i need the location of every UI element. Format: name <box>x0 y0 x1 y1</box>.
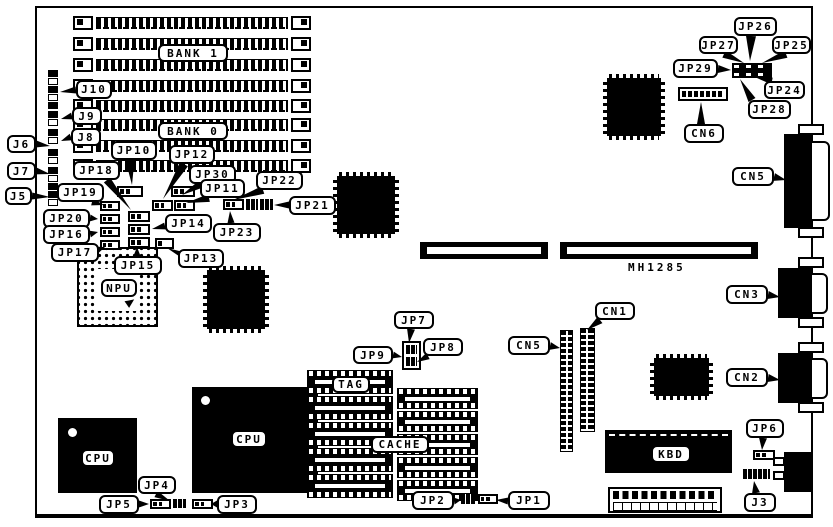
leader-line <box>89 231 98 238</box>
leader-line <box>90 215 98 222</box>
leader-line <box>126 160 135 185</box>
callout-text: JP11 <box>205 182 240 195</box>
callout-text: TAG <box>338 378 364 391</box>
leader-line <box>496 498 508 505</box>
callout-text: KBD <box>658 448 684 461</box>
callout-text: CN6 <box>691 127 717 140</box>
label-jp5: JP5 <box>99 495 139 514</box>
leader-line <box>767 291 780 299</box>
callout-text: JP19 <box>63 186 98 199</box>
callout-text: JP25 <box>774 39 809 52</box>
callout-text: JP10 <box>117 144 152 157</box>
callout-text: J8 <box>77 131 94 144</box>
label-jp4: JP4 <box>138 476 176 494</box>
label-jp22: JP22 <box>256 171 303 190</box>
leader-line <box>407 328 415 343</box>
callout-text: J3 <box>751 496 768 509</box>
label-j10: J10 <box>76 80 112 99</box>
label-jp25: JP25 <box>772 36 811 54</box>
label-jp28: JP28 <box>748 100 791 119</box>
label-j3: J3 <box>744 493 776 512</box>
callout-text: CACHE <box>378 438 421 451</box>
leader-line <box>36 141 50 148</box>
label-j7: J7 <box>7 162 36 180</box>
label-jp13: JP13 <box>178 249 224 268</box>
label-cn6: CN6 <box>684 124 724 143</box>
callout-text: JP18 <box>79 164 114 177</box>
leader-line <box>697 102 705 124</box>
label-j6: J6 <box>7 135 36 153</box>
label-j5: J5 <box>5 187 32 205</box>
leader-line <box>60 87 76 94</box>
callout-text: JP2 <box>420 494 446 507</box>
label-jp26: JP26 <box>734 17 777 36</box>
label-jp24: JP24 <box>764 81 805 99</box>
callout-text: JP16 <box>49 228 84 241</box>
label-jp12: JP12 <box>169 145 215 164</box>
leader-line <box>32 193 50 200</box>
callout-text: JP20 <box>49 212 84 225</box>
callout-text: JP17 <box>58 246 93 259</box>
leader-line <box>274 202 289 209</box>
callout-text: JP22 <box>262 174 297 187</box>
callout-text: JP15 <box>121 259 156 272</box>
label-jp21: JP21 <box>289 196 336 215</box>
leader-line <box>134 247 141 256</box>
label-cn2: CN2 <box>726 368 768 387</box>
label-cn1: CN1 <box>595 302 635 320</box>
label-cpu-right: CPU <box>231 430 267 448</box>
callout-text: JP21 <box>295 199 330 212</box>
callout-text: JP23 <box>220 226 255 239</box>
label-jp23: JP23 <box>213 223 261 242</box>
callout-text: JP14 <box>171 217 206 230</box>
label-cn3: CN3 <box>726 285 768 304</box>
label-cache: CACHE <box>371 436 429 453</box>
callout-text: J7 <box>13 165 30 178</box>
leader-line <box>759 438 767 450</box>
callout-text: JP28 <box>752 103 787 116</box>
label-bank1: BANK 1 <box>158 44 228 62</box>
label-jp8: JP8 <box>423 338 463 356</box>
callout-text: JP12 <box>175 148 210 161</box>
leader-line <box>35 168 50 175</box>
callout-text: JP6 <box>752 422 778 435</box>
callout-text: J6 <box>13 138 30 151</box>
part-number-text: MH1285 <box>628 261 686 274</box>
label-j8: J8 <box>71 128 101 146</box>
callout-text: CN2 <box>734 371 760 384</box>
label-cn5-rear: CN5 <box>732 167 774 186</box>
leader-line <box>228 211 235 223</box>
label-tag: TAG <box>332 376 370 393</box>
leader-line <box>746 36 756 61</box>
leader-line <box>740 79 755 102</box>
callout-text: J5 <box>10 190 27 203</box>
callout-text: J10 <box>81 83 107 96</box>
callout-text: JP27 <box>701 39 736 52</box>
callout-text: CN3 <box>734 288 760 301</box>
callout-text: J9 <box>78 110 95 123</box>
leader-line <box>392 352 402 359</box>
label-jp27: JP27 <box>699 36 738 54</box>
leader-line <box>718 65 731 73</box>
leader-line <box>773 173 786 181</box>
label-jp9: JP9 <box>353 346 393 364</box>
callout-text: JP7 <box>401 314 427 327</box>
leader-line <box>104 178 131 210</box>
label-j9: J9 <box>72 107 102 125</box>
callout-text: CPU <box>85 452 111 465</box>
callout-text: CPU <box>236 433 262 446</box>
callout-text: JP24 <box>767 84 802 97</box>
callout-text: CN5 <box>516 339 542 352</box>
label-jp11: JP11 <box>200 179 245 198</box>
label-jp7: JP7 <box>394 311 434 329</box>
label-jp19: JP19 <box>57 183 104 202</box>
label-jp2: JP2 <box>412 491 454 510</box>
leader-line <box>767 374 780 382</box>
callout-text: JP26 <box>738 20 773 33</box>
leader-line <box>152 223 166 230</box>
callout-text: JP4 <box>144 479 170 492</box>
label-jp1: JP1 <box>508 491 550 510</box>
leader-line <box>454 498 461 505</box>
callout-text: JP8 <box>430 341 456 354</box>
callout-text: CN5 <box>740 170 766 183</box>
callout-text: JP29 <box>678 62 713 75</box>
label-jp29: JP29 <box>673 59 718 78</box>
label-cpu-left: CPU <box>81 449 115 467</box>
callout-text: CN1 <box>602 305 628 318</box>
label-jp18: JP18 <box>73 161 120 180</box>
callout-text: JP13 <box>184 252 219 265</box>
label-jp14: JP14 <box>165 214 212 233</box>
leader-line <box>549 342 560 350</box>
motherboard-diagram: BANK 1BANK 0J10J9J8J6J7J5JP10JP12JP18JP3… <box>0 0 833 527</box>
label-jp17: JP17 <box>51 243 99 262</box>
label-cn5-header: CN5 <box>508 336 550 355</box>
label-jp6: JP6 <box>746 419 784 438</box>
label-jp15: JP15 <box>114 256 162 275</box>
callout-text: BANK 1 <box>167 47 219 60</box>
callout-text: BANK 0 <box>167 125 219 138</box>
callout-text: JP3 <box>224 498 250 511</box>
label-jp16: JP16 <box>43 225 90 244</box>
callout-text: NPU <box>106 282 132 295</box>
label-kbd: KBD <box>651 445 691 463</box>
label-jp3: JP3 <box>217 495 257 514</box>
leader-line <box>139 501 149 508</box>
callout-text: JP1 <box>516 494 542 507</box>
label-bank0: BANK 0 <box>158 122 228 140</box>
board-part-number: MH1285 <box>628 261 686 274</box>
callout-text: JP9 <box>360 349 386 362</box>
callout-text: JP5 <box>106 498 132 511</box>
label-npu: NPU <box>101 279 137 297</box>
leader-line <box>752 481 760 494</box>
label-jp10: JP10 <box>111 141 157 160</box>
